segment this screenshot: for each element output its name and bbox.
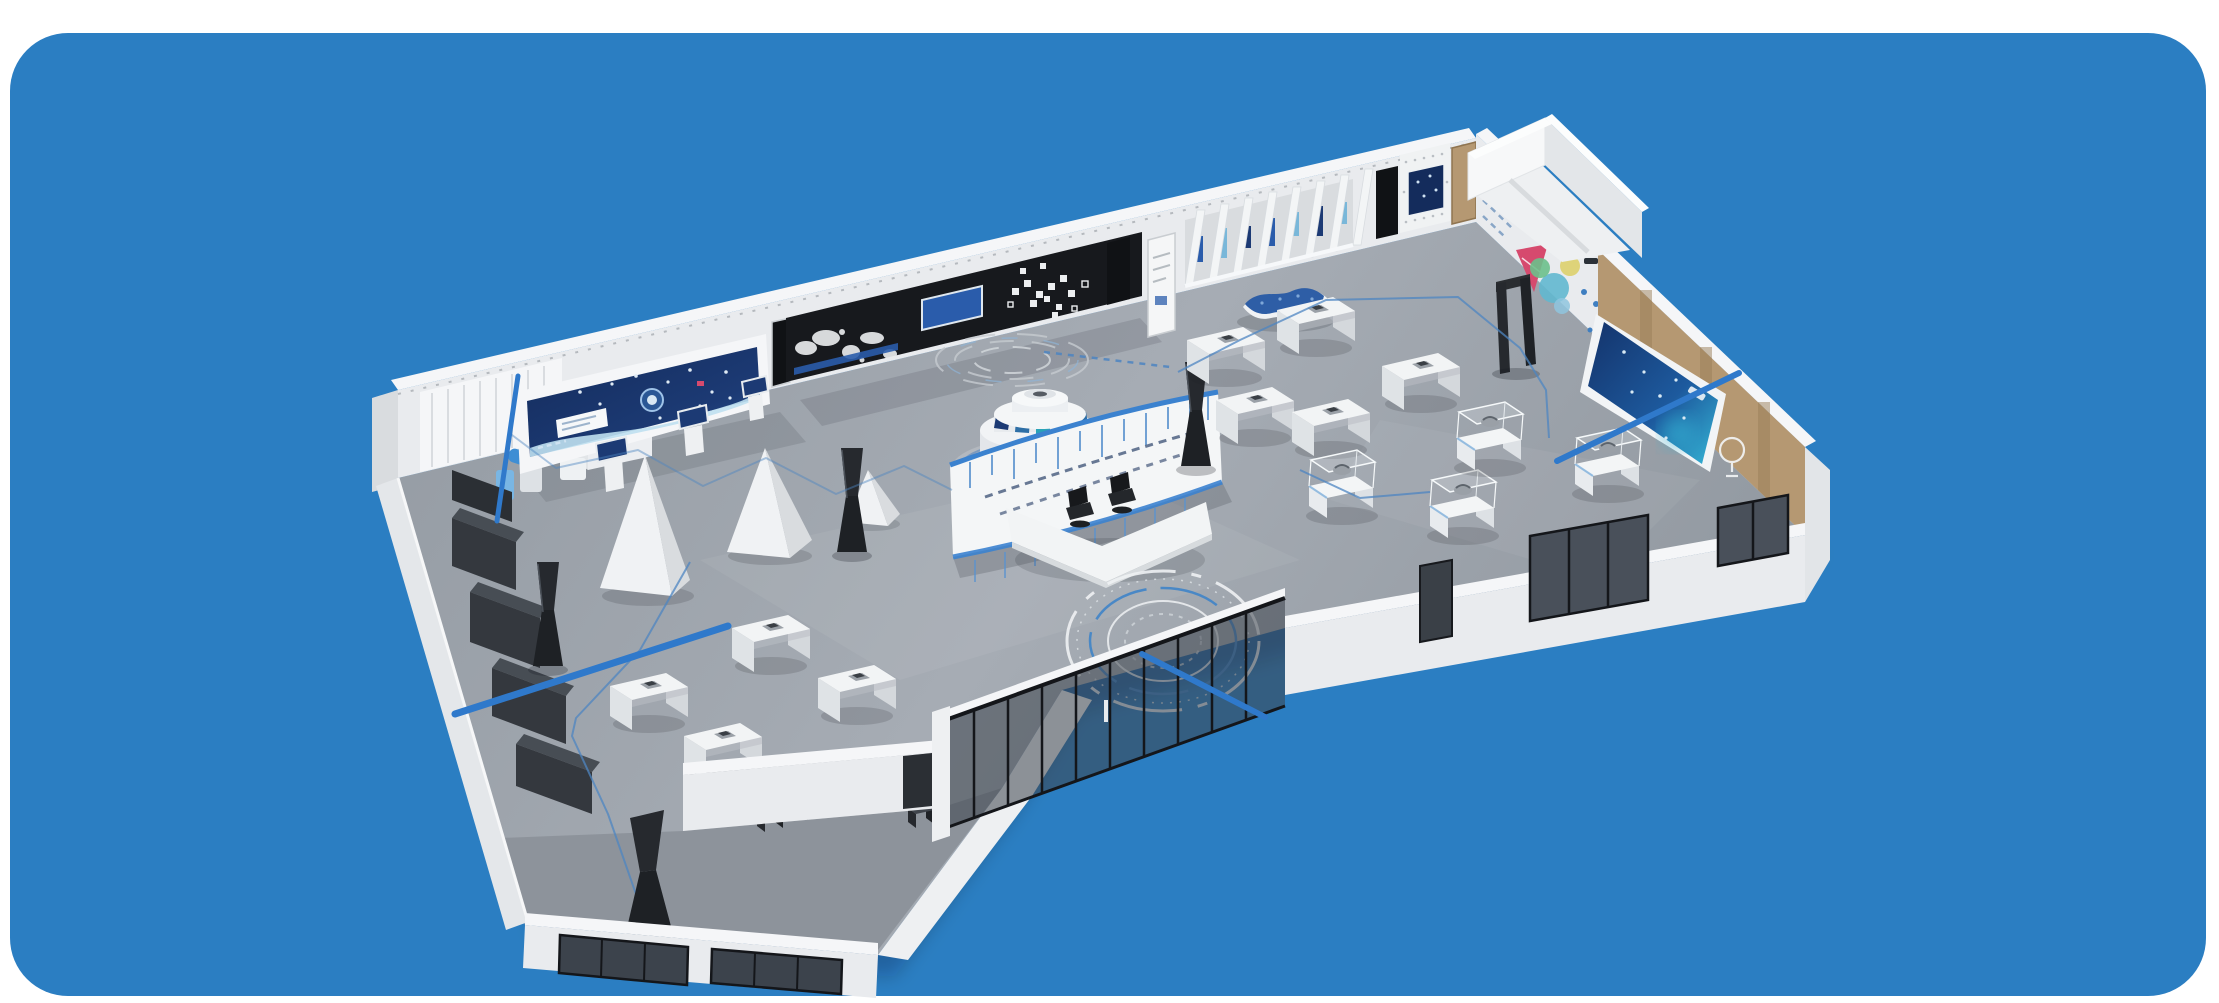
poster-panel xyxy=(1148,233,1175,337)
pegboard-screen xyxy=(1400,143,1450,233)
gallery-door-2 xyxy=(1107,237,1130,305)
gallery-door-3 xyxy=(1376,166,1398,239)
display-case xyxy=(1306,450,1378,525)
wing-doorway xyxy=(903,753,932,809)
display-case xyxy=(1454,402,1526,477)
info-green-circle xyxy=(1530,258,1550,278)
page-background: Isometric 3D rendering of a smart techno… xyxy=(0,0,2219,1003)
door-handle xyxy=(1104,700,1108,722)
exhibition-hall-render: Isometric 3D rendering of a smart techno… xyxy=(0,0,2219,1003)
display-case xyxy=(1427,470,1499,545)
